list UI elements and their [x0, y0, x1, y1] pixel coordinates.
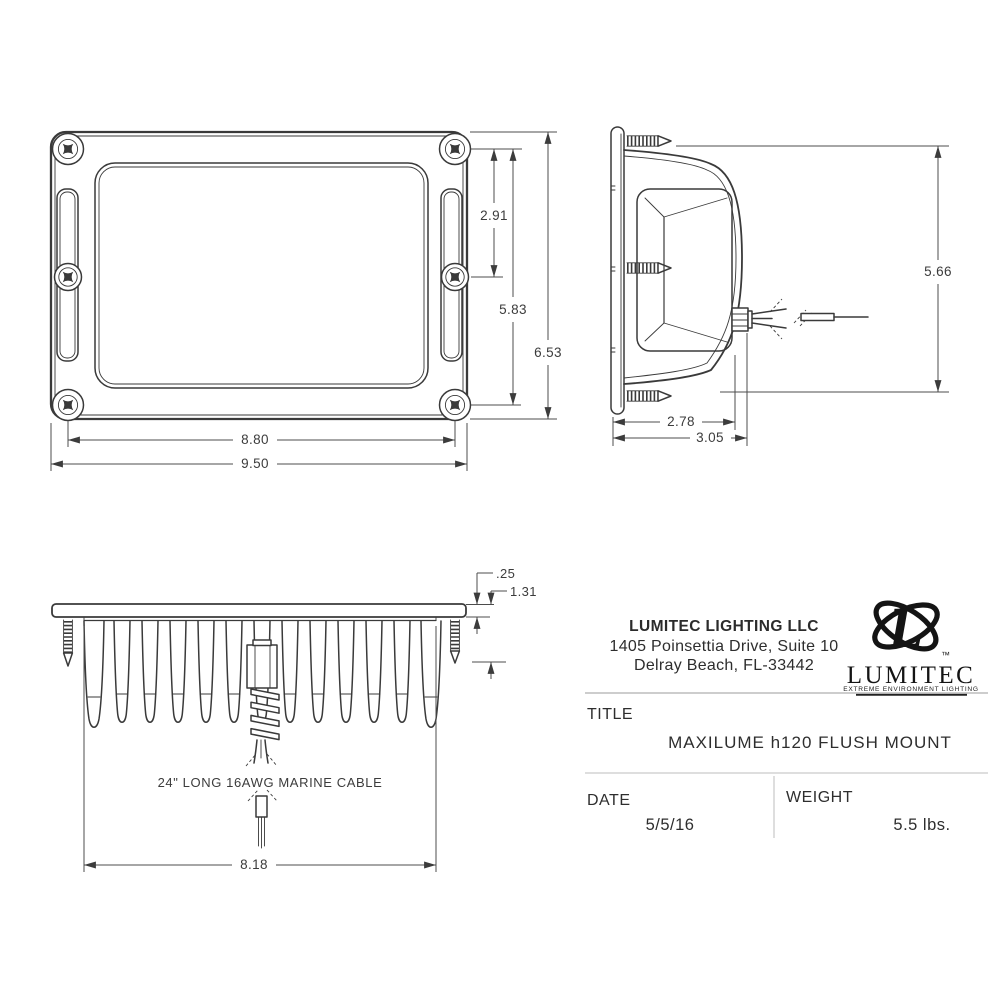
bottom-view: 24" LONG 16AWG MARINE CABLE 8.18 .25 1.3…: [52, 566, 537, 872]
side-screw-icon: [627, 136, 671, 146]
dim-vertical-screw-span: 5.83: [499, 302, 527, 317]
company-name: LUMITEC LIGHTING LLC: [629, 618, 819, 635]
corner-screw-icon: [53, 390, 84, 421]
dim-fin-span: 8.18: [240, 857, 268, 872]
dim-body-depth: 2.78: [667, 414, 695, 429]
front-bezel-inner-line: [55, 136, 463, 415]
logo-monogram: L: [887, 595, 923, 660]
corner-screw-icon: [440, 390, 471, 421]
front-lens-outline: [95, 163, 428, 388]
front-lens-inner-line: [99, 167, 424, 384]
corner-screw-icon: [53, 134, 84, 165]
cable-end-segment: [248, 790, 277, 848]
dim-overall-width: 9.50: [241, 456, 269, 471]
bottom-screw-icon: [64, 620, 73, 666]
weight-value: 5.5 lbs.: [893, 816, 950, 834]
dim-side-overall-height: 5.66: [924, 264, 952, 279]
front-view: 2.91 5.83 6.53 8.80 9.50: [51, 132, 562, 471]
dim-flange-thickness: .25: [496, 566, 515, 581]
bottom-view-dimensions: 8.18 .25 1.31: [84, 566, 537, 872]
bottom-flange: [52, 604, 466, 617]
company-address-line2: Delray Beach, FL-33442: [634, 657, 814, 674]
date-value: 5/5/16: [646, 816, 695, 834]
middle-screw-icon: [55, 264, 82, 291]
pigtail-wire: [794, 310, 868, 326]
title-value: MAXILUME h120 FLUSH MOUNT: [668, 733, 952, 752]
cable-gland: [732, 299, 786, 339]
dim-overall-depth: 3.05: [696, 430, 724, 445]
dim-horizontal-screw-span: 8.80: [241, 432, 269, 447]
front-bezel-outline: [51, 132, 467, 419]
logo-trademark: ™: [941, 650, 950, 660]
title-label: TITLE: [587, 706, 633, 723]
side-flange: [611, 127, 624, 414]
weight-label: WEIGHT: [786, 789, 853, 806]
drawing-canvas: 2.91 5.83 6.53 8.80 9.50: [0, 0, 1000, 1000]
corner-screw-icon: [440, 134, 471, 165]
side-screw-icon: [627, 391, 671, 401]
dim-overall-height: 6.53: [534, 345, 562, 360]
logo-tagline: EXTREME ENVIRONMENT LIGHTING: [843, 686, 978, 693]
logo-wordmark: LUMITEC: [847, 662, 976, 689]
company-address-line1: 1405 Poinsettia Drive, Suite 10: [610, 638, 839, 655]
side-view: 5.66 2.78 3.05: [611, 127, 952, 446]
title-block: LUMITEC LIGHTING LLC 1405 Poinsettia Dri…: [585, 594, 988, 838]
cable-note-label: 24" LONG 16AWG MARINE CABLE: [158, 775, 383, 790]
lumitec-logo-icon: L ™ LUMITEC EXTREME ENVIRONMENT LIGHTING: [843, 594, 978, 695]
dim-upper-screw-spacing: 2.91: [480, 208, 508, 223]
dim-flange-offset: 1.31: [510, 584, 537, 599]
marine-cable: [246, 640, 279, 766]
bottom-screw-icon: [451, 620, 460, 663]
date-label: DATE: [587, 792, 630, 809]
middle-screw-icon: [442, 264, 469, 291]
technical-drawing-sheet: 2.91 5.83 6.53 8.80 9.50: [0, 0, 1000, 1000]
